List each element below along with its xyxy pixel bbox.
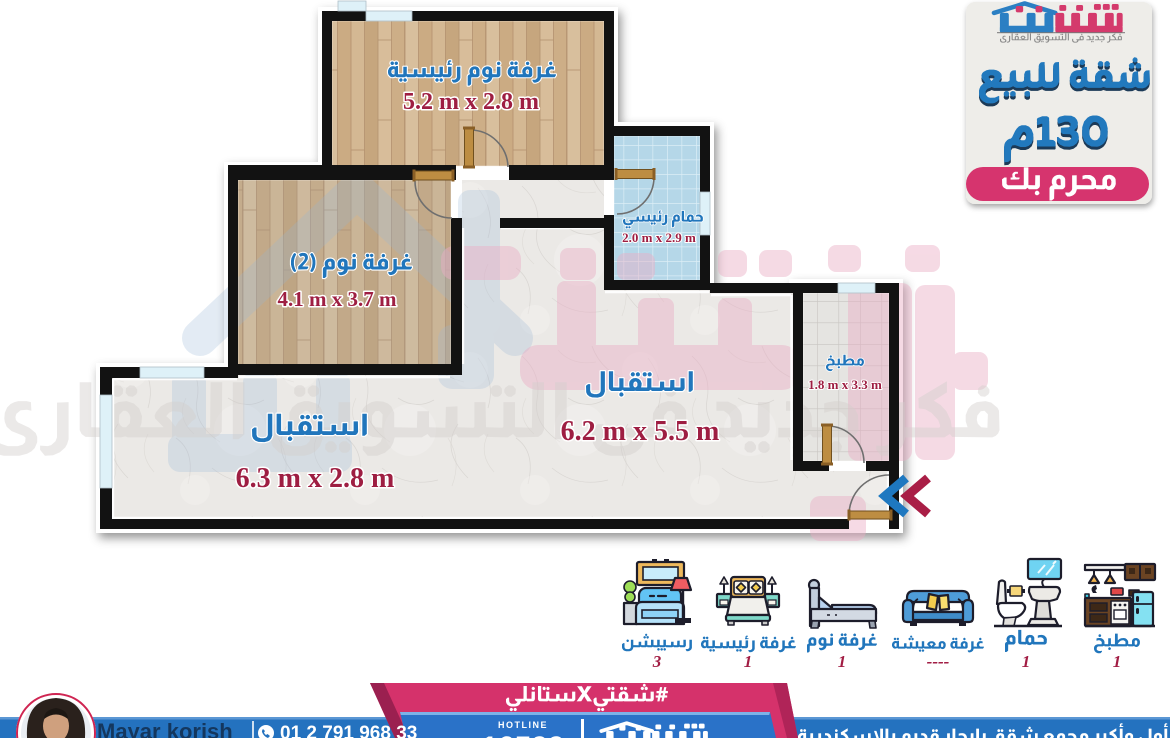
svg-text:5.2 m x 2.8 m: 5.2 m x 2.8 m xyxy=(403,89,539,115)
svg-text:1: 1 xyxy=(744,652,753,671)
svg-text:1: 1 xyxy=(838,652,847,671)
svg-text:16599: 16599 xyxy=(481,731,564,738)
svg-text:6.3 m x 2.8 m: 6.3 m x 2.8 m xyxy=(236,463,395,494)
svg-text:4.1 m x 3.7 m: 4.1 m x 3.7 m xyxy=(278,287,397,311)
svg-text:6.2 m x 5.5 m: 6.2 m x 5.5 m xyxy=(561,416,720,447)
svg-text:1: 1 xyxy=(1113,652,1122,671)
svg-text:HOTLINE: HOTLINE xyxy=(498,720,548,730)
svg-text:Mayar korish: Mayar korish xyxy=(97,719,233,738)
svg-text:3: 3 xyxy=(652,652,662,671)
svg-text:01 2 791 968 33: 01 2 791 968 33 xyxy=(280,723,417,738)
svg-text:----: ---- xyxy=(927,652,950,671)
svg-text:1: 1 xyxy=(1022,652,1031,671)
svg-text:1.8 m x 3.3 m: 1.8 m x 3.3 m xyxy=(808,377,882,392)
svg-text:2.0 m x 2.9 m: 2.0 m x 2.9 m xyxy=(622,230,696,245)
